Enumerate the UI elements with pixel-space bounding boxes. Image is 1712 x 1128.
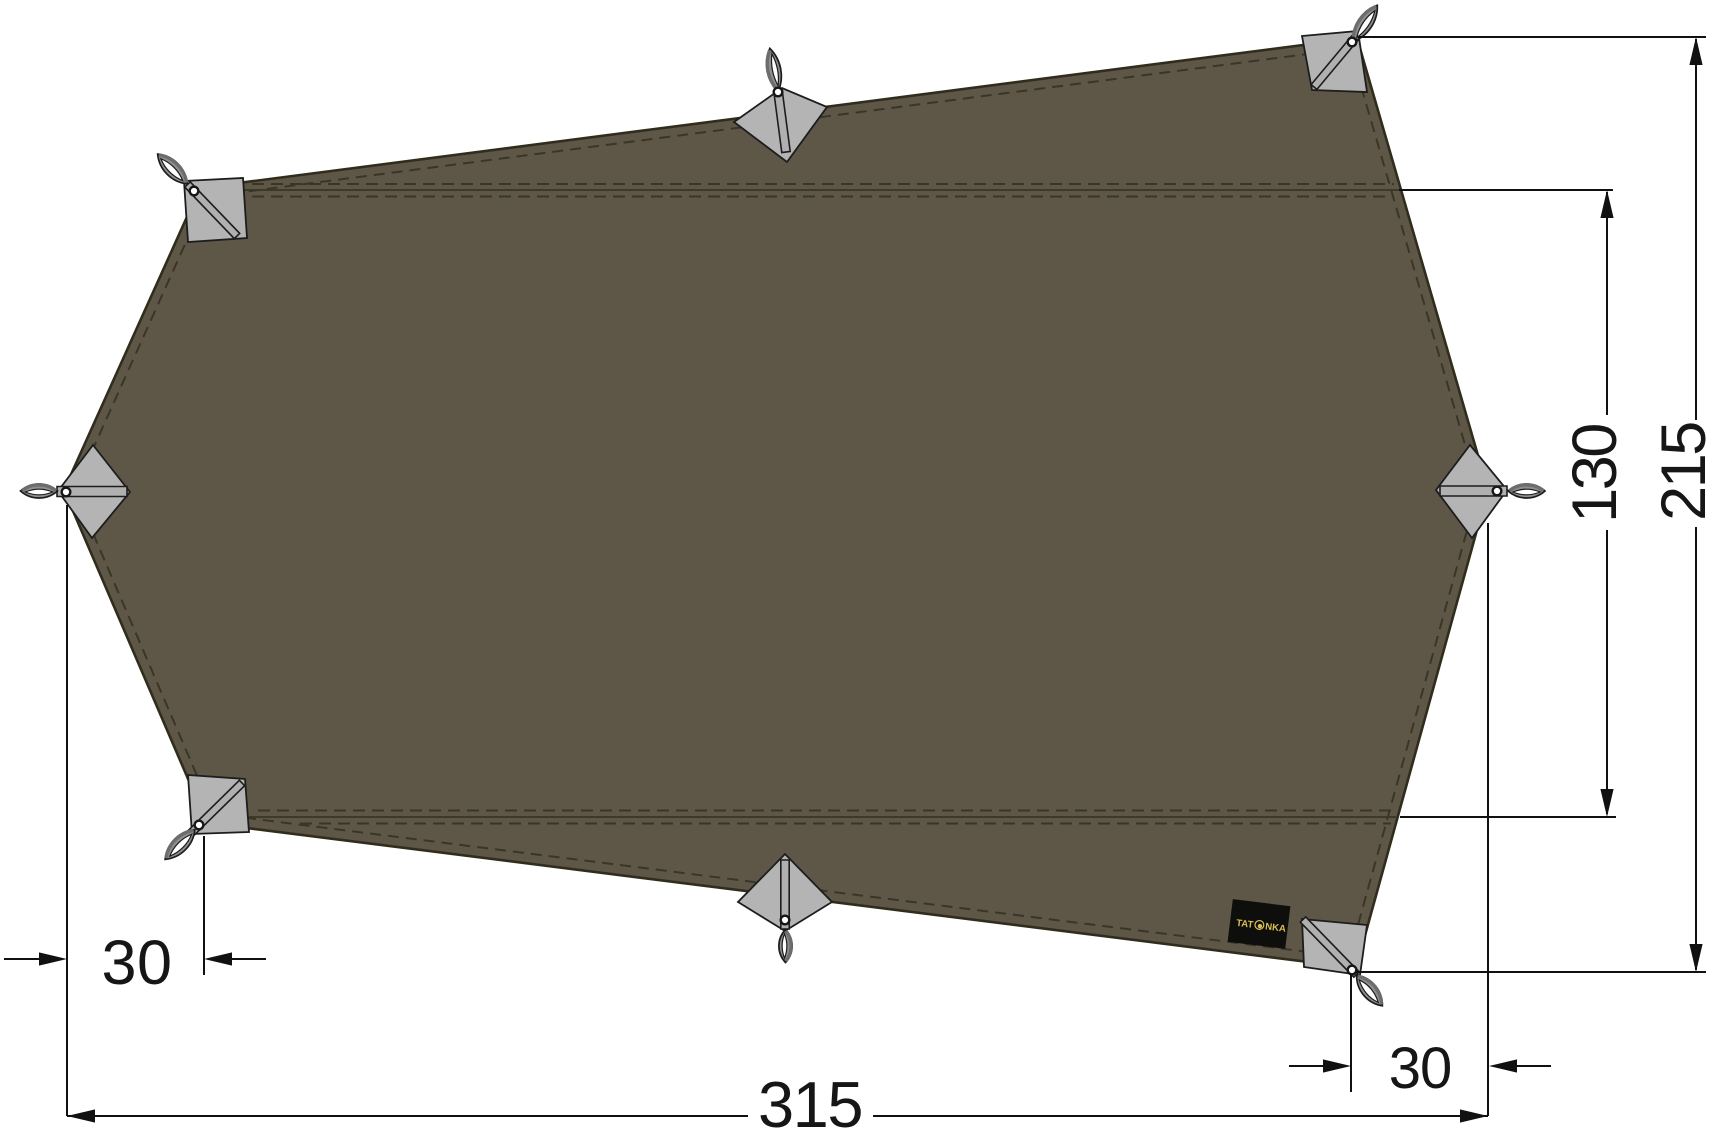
svg-text:315: 315 <box>758 1068 862 1128</box>
svg-text:TAT: TAT <box>1236 918 1255 931</box>
svg-text:130: 130 <box>1560 425 1630 523</box>
svg-text:30: 30 <box>101 928 172 998</box>
svg-text:30: 30 <box>1389 1036 1452 1101</box>
svg-text:215: 215 <box>1649 423 1712 521</box>
